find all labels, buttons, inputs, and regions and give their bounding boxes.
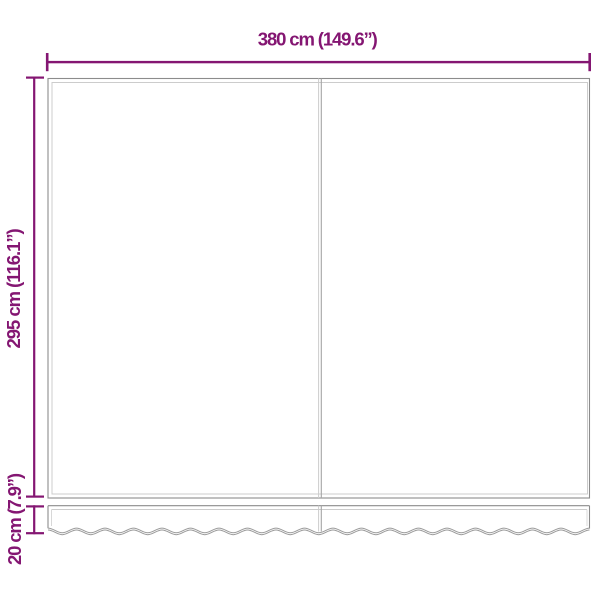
svg-text:20 cm (7.9”): 20 cm (7.9”) xyxy=(4,473,25,565)
svg-text:295 cm (116.1”): 295 cm (116.1”) xyxy=(3,228,24,348)
svg-text:380 cm (149.6”): 380 cm (149.6”) xyxy=(258,29,378,50)
